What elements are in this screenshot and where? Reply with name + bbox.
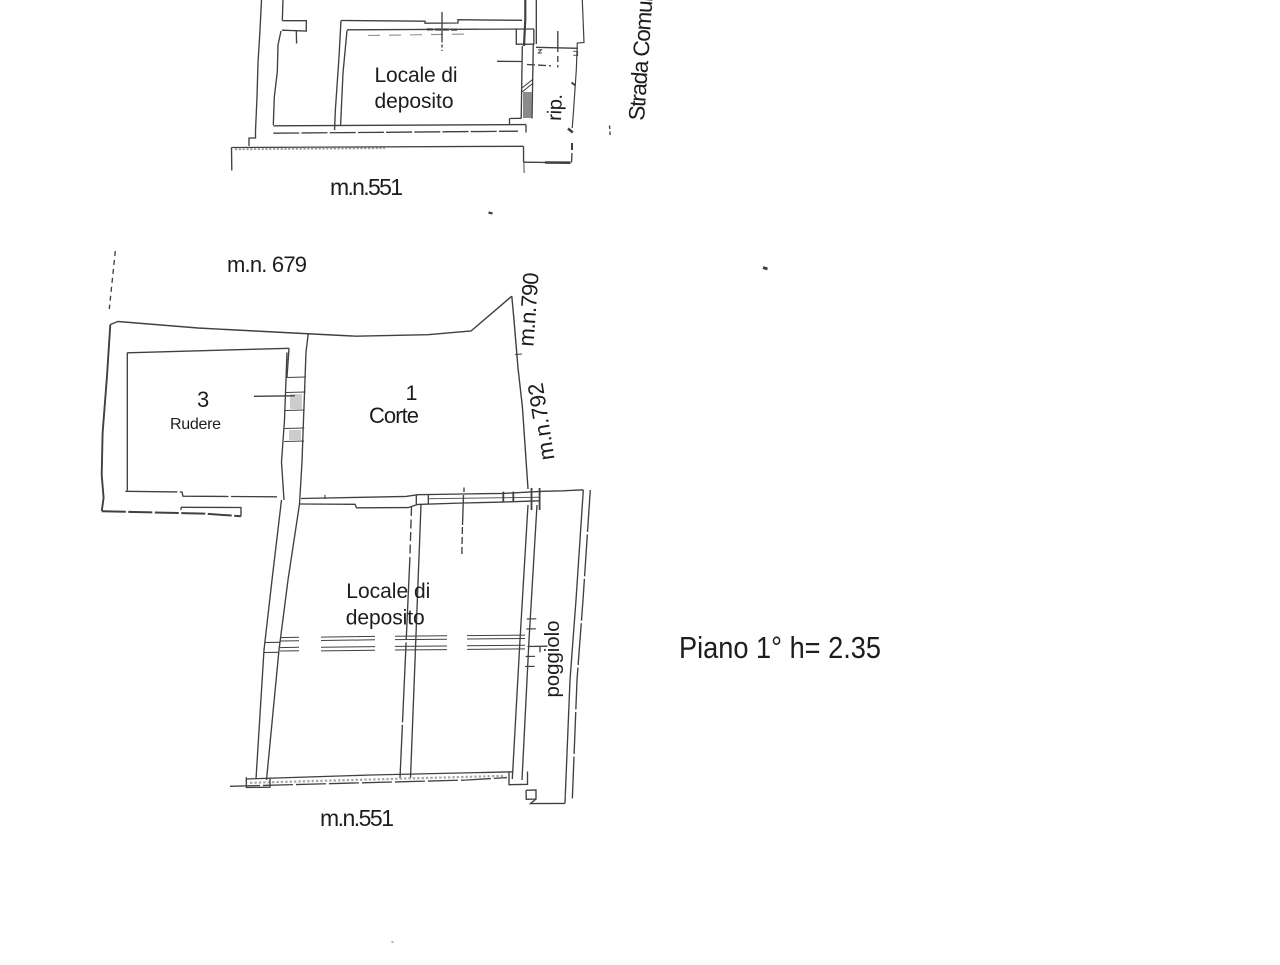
- svg-text:Locale di: Locale di: [346, 580, 430, 603]
- svg-text:m.n.792: m.n.792: [523, 381, 560, 462]
- svg-text:deposito: deposito: [375, 90, 454, 113]
- svg-text:1: 1: [406, 381, 418, 405]
- svg-text:Locale di: Locale di: [375, 64, 458, 87]
- svg-text:m.n.790: m.n.790: [513, 272, 543, 348]
- svg-text:rip.: rip.: [544, 93, 567, 121]
- svg-text:Corte: Corte: [369, 403, 419, 428]
- svg-text:m.n. 679: m.n. 679: [227, 252, 307, 277]
- svg-text:3: 3: [197, 387, 209, 412]
- svg-text:m.n.551: m.n.551: [330, 174, 403, 200]
- svg-text:Piano 1° h= 2.35: Piano 1° h= 2.35: [679, 630, 881, 665]
- svg-text:deposito: deposito: [346, 607, 425, 630]
- svg-text:m.n.551: m.n.551: [320, 805, 394, 831]
- svg-text:Strada Comunale: Strada Comunale: [624, 0, 660, 121]
- svg-text:Rudere: Rudere: [170, 416, 221, 433]
- svg-text:poggiolo: poggiolo: [541, 621, 564, 698]
